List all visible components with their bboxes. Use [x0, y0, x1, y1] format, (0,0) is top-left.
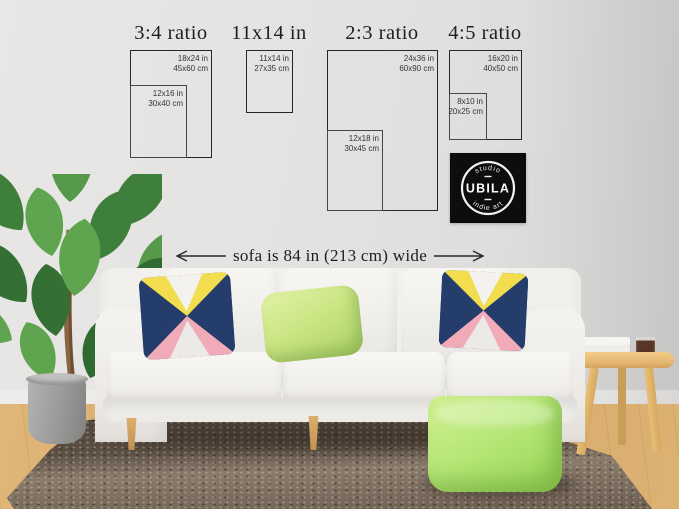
table-leg: [618, 367, 626, 445]
candle-jar: [636, 337, 655, 353]
geometric-pillow-left: [137, 271, 237, 361]
frame-size-label: 8x10 in 20x25 cm: [448, 97, 483, 118]
table-leg: [644, 367, 662, 451]
badge-brand-name: UBILA: [466, 182, 510, 196]
frame-size-label: 11x14 in 27x35 cm: [254, 54, 289, 75]
frame-size-label: 12x18 in 30x45 cm: [344, 134, 379, 155]
ratio-title-2-3: 2:3 ratio: [332, 22, 432, 45]
arrow-right-icon: [434, 249, 486, 263]
sofa-leg: [307, 416, 320, 450]
frame-size-label: 18x24 in 45x60 cm: [173, 54, 208, 75]
ratio-title-3-4: 3:4 ratio: [121, 22, 221, 45]
sofa-width-label: sofa is 84 in (213 cm) wide: [233, 246, 427, 266]
green-pillow: [260, 284, 365, 364]
frame-12x16: 12x16 in 30x40 cm: [130, 85, 187, 158]
frame-12x18: 12x18 in 30x45 cm: [327, 130, 383, 211]
product-mockup-scene: 3:4 ratio 11x14 in 2:3 ratio 4:5 ratio 1…: [0, 0, 679, 509]
arrow-left-icon: [174, 249, 226, 263]
frame-8x10: 8x10 in 20x25 cm: [449, 93, 487, 140]
frame-11x14: 11x14 in 27x35 cm: [246, 50, 293, 113]
plant-pot: [28, 378, 86, 444]
ratio-title-11x14: 11x14 in: [219, 22, 319, 45]
frame-size-label: 12x16 in 30x40 cm: [148, 89, 183, 110]
geometric-pillow-right: [435, 269, 532, 353]
brand-badge: studio UBILA indie art: [450, 153, 526, 223]
ratio-title-4-5: 4:5 ratio: [435, 22, 535, 45]
sofa-width-dimension: sofa is 84 in (213 cm) wide: [184, 243, 476, 269]
green-pouf: [428, 396, 562, 492]
frame-size-label: 16x20 in 40x50 cm: [483, 54, 518, 75]
frame-size-label: 24x36 in 60x90 cm: [399, 54, 434, 75]
table-top: [574, 352, 674, 368]
